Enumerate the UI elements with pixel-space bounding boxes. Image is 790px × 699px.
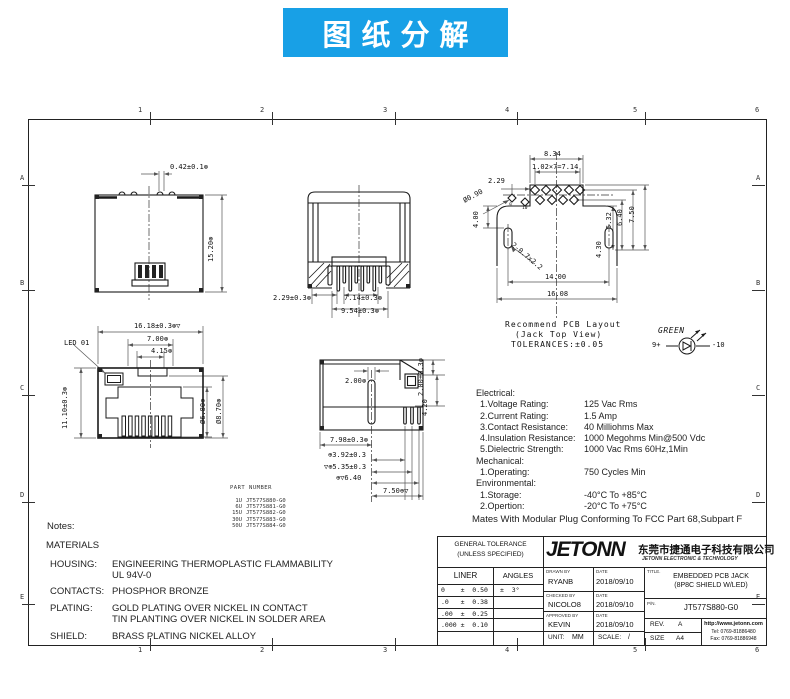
dim-side-750: 7.50⊕▽ [383,487,408,496]
spec-value: 1000 Megohms Min@500 Vdc [584,433,705,443]
grid-col-label: 6 [755,106,759,114]
tolerance-liner-row: .00 ± 0.25 [441,610,488,618]
liner-header: LINER [438,571,493,580]
drawing-sheet-page: 图纸分解 1 2 3 4 5 6 1 2 3 4 5 6 A B C D E A… [0,0,790,699]
divider [644,598,766,599]
date-label: DATE [596,569,608,574]
grid-tick [272,638,273,651]
dim-front-700: 7.00⊛ [147,335,168,344]
tolerance-liner-row: .000 ± 0.10 [441,621,488,629]
grid-tick [22,395,35,396]
grid-tick [752,185,765,186]
checked-by-value: NICOLO8 [548,600,581,609]
dim-side-392: ⊕3.92±0.3 [328,451,366,460]
grid-tick [517,112,518,125]
material-name: HOUSING: [50,559,97,570]
spec-value: 750 Cycles Min [584,467,646,477]
approved-by-value: KEVIN [548,620,571,629]
date-label: DATE [596,613,608,618]
date-label: DATE [596,593,608,598]
grid-tick [22,185,35,186]
mechanical-title: Mechanical: [476,456,776,467]
website: http://www.jetonn.com [701,621,766,627]
grid-row-label: B [20,279,24,287]
part-number-plating: 50U [226,523,242,529]
divider [644,618,766,619]
unit-value: MM [572,634,584,641]
fcc-footnote: Mates With Modular Plug Conforming To FC… [472,514,776,525]
divider [593,567,594,645]
grid-tick [645,112,646,125]
grid-row-label: C [20,384,24,392]
drawn-by-value: RYANB [548,577,573,586]
dim-pcb-400: 4.00 [472,211,481,228]
company-name-cn: 东莞市捷通电子科技有限公司 [638,542,775,557]
dim-pcb-532: 5.32 [605,212,614,229]
material-name: PLATING: [50,603,93,614]
grid-col-label: 1 [138,646,142,654]
dim-bottom-pin-span: 7.14±0.3⊛ [344,294,382,303]
spec-row: 4.Insulation Resistance:1000 Megohms Min… [476,433,776,444]
size-label: SIZE [650,635,664,642]
rev-value: A [678,621,682,628]
notes-label: Notes: [47,521,74,532]
grid-col-label: 4 [505,646,509,654]
material-name: CONTACTS: [50,586,104,597]
side-view-drawing [315,350,465,510]
rev-label: REV. [650,621,665,628]
grid-col-label: 5 [633,106,637,114]
pn-label: P/N. [647,601,656,606]
spec-value: -40°C To +85°C [584,490,647,500]
tolerance-liner-row: .0 ± 0.38 [441,598,488,606]
grid-tick [395,638,396,651]
dim-front-870: Ø8.70⊛ [215,399,224,424]
spec-row: 1.Operating:750 Cycles Min [476,467,776,478]
grid-tick [150,112,151,125]
spec-label: 1.Storage: [476,490,584,501]
part-number-row: 50UJT577S884-G0 [226,523,286,529]
dim-front-415: 4.15⊛ [151,347,172,356]
spec-label: 1.Voltage Rating: [476,399,584,410]
divider [438,567,766,568]
grid-row-label: A [756,174,760,182]
grid-col-label: 3 [383,106,387,114]
part-number-title: PART NUMBER [230,485,286,491]
material-value: UL 94V-0 [112,570,151,581]
spec-row: 1.Voltage Rating:125 Vac Rms [476,399,776,410]
grid-row-label: D [20,491,24,499]
divider [438,596,543,597]
date-value: 2018/09/10 [596,600,634,609]
spec-label: 2.Opertion: [476,501,584,512]
grid-tick [272,112,273,125]
material-name: SHIELD: [50,631,87,642]
dim-pcb-430: 4.30 [595,241,604,258]
title-block: GENERAL TOLERANCE (UNLESS SPECIFIED) LIN… [437,536,767,646]
dim-side-200t: 2.00±0.3⊛ [417,358,426,396]
part-number-code: JT577S883-G0 [246,517,286,523]
spec-value: 1.5 Amp [584,411,617,421]
tolerance-liner-row: 0 ± 0.50 [441,586,488,594]
spec-label: 4.Insulation Resistance: [476,433,584,444]
part-number-table: PART NUMBER 1UJT577S880-G0 6UJT577S881-G… [226,485,286,529]
spec-row: 1.Storage:-40°C To +85°C [476,490,776,501]
banner-title: 图纸分解 [312,12,478,54]
divider [438,618,543,619]
pcb-layout-tolerance: TOLERANCES:±0.05 [511,340,604,349]
spec-label: 3.Contact Resistance: [476,422,584,433]
spec-row: 2.Current Rating:1.5 Amp [476,411,776,422]
grid-row-label: B [756,279,760,287]
pcb-layout-title: Recommend PCB Layout [505,320,621,329]
date-value: 2018/09/10 [596,577,634,586]
spec-label: 5.Dielectric Strength: [476,444,584,455]
part-number-code: JT577S882-G0 [246,510,286,516]
drawn-by-label: DRAWN BY [546,569,570,574]
specifications: Electrical: 1.Voltage Rating:125 Vac Rms… [476,388,776,526]
pcb-pin9-label: 9 [509,203,512,208]
divider [543,537,544,645]
pcb-pin10-label: 10 [522,206,527,211]
dim-pcb-229: 2.29 [488,177,505,186]
divider [438,584,543,585]
pn-value: JT577S880-G0 [656,603,766,612]
grid-col-label: 2 [260,106,264,114]
grid-col-label: 1 [138,106,142,114]
spec-label: 2.Current Rating: [476,411,584,422]
grid-tick [395,112,396,125]
scale-value: / [628,634,630,641]
unit-label: UNIT: [548,634,564,641]
material-value: BRASS PLATING NICKEL ALLOY [112,631,256,642]
dim-pcb-1400: 14.00 [545,273,566,282]
dim-front-height: 11.10±0.3⊛ [61,387,70,429]
grid-col-label: 5 [633,646,637,654]
divider [644,567,645,645]
dim-bottom-offset: 2.29±0.3⊛ [273,294,311,303]
company-name-en: JETONN ELECTRONIC & TECHNOLOGY [642,556,738,562]
size-value: A4 [676,635,684,642]
material-value: TIN PLANTING OVER NICKEL IN SOLDER AREA [112,614,325,625]
approved-by-label: APPROVED BY [546,613,578,618]
tel: Tel: 0769-81886480 [701,629,766,635]
date-value: 2018/09/10 [596,620,634,629]
spec-value: 1000 Vac Rms 60Hz,1Min [584,444,688,454]
part-number-code: JT577S884-G0 [246,523,286,529]
general-tolerance-line1: GENERAL TOLERANCE [438,541,543,548]
dim-pcb-834: 8.34 [544,150,561,159]
dim-side-200: 2.00⊛ [345,377,366,386]
material-value: GOLD PLATING OVER NICKEL IN CONTACT [112,603,308,614]
dim-front-width: 16.18±0.3⊛▽ [134,322,180,331]
grid-tick [752,290,765,291]
pcb-layout-subtitle: (Jack Top View) [515,330,602,339]
grid-col-label: 4 [505,106,509,114]
dim-side-535: ▽⊕5.35±0.3 [324,463,366,472]
tolerance-angle-row: ± 3° [500,586,520,594]
electrical-title: Electrical: [476,388,776,399]
drawing-title-line2: (8P8C SHIELD W/LED) [656,582,766,589]
spec-row: 5.Dielectric Strength:1000 Vac Rms 60Hz,… [476,444,776,455]
top-view-drawing [75,158,235,308]
dim-pcb-pitch: 1.02×7=7.14 [532,163,578,172]
dim-side-640: ⊕▽6.40 [336,474,361,483]
grid-tick [22,290,35,291]
spec-label: 1.Operating: [476,467,584,478]
banner: 图纸分解 [283,8,508,57]
grid-tick [22,502,35,503]
fax: Fax: 0769-81886948 [701,636,766,642]
dim-side-420: 4.20 [421,399,430,416]
grid-col-label: 2 [260,646,264,654]
led-anode-label: 9+ [652,341,660,350]
front-led-label: LED 01 [64,339,89,348]
spec-row: 3.Contact Resistance:40 Milliohms Max [476,422,776,433]
spec-value: 125 Vac Rms [584,399,637,409]
divider [644,632,701,633]
material-value: PHOSPHOR BRONZE [112,586,209,597]
environmental-title: Environmental: [476,478,776,489]
dim-pcb-1608: 16.08 [547,290,568,299]
grid-row-label: A [20,174,24,182]
material-value: ENGINEERING THERMOPLASTIC FLAMMABILITY [112,559,333,570]
spec-value: -20°C To +75°C [584,501,647,511]
grid-tick [22,604,35,605]
dim-pcb-750: 7.50 [628,206,637,223]
divider [438,631,644,632]
scale-label: SCALE: [598,634,621,641]
angles-header: ANGLES [493,571,543,580]
spec-row: 2.Opertion:-20°C To +75°C [476,501,776,512]
grid-row-label: E [20,593,24,601]
dim-pcb-640: 6.40 [616,209,625,226]
led-cathode-label: -10 [712,341,725,350]
general-tolerance-line2: (UNLESS SPECIFIED) [438,551,543,558]
materials-label: MATERIALS [46,540,99,551]
drawing-title-line1: EMBEDDED PCB JACK [656,573,766,580]
grid-col-label: 6 [755,646,759,654]
led-symbol-icon [664,329,736,359]
dim-top-tab: 0.42±0.1⊛ [170,163,208,172]
checked-by-label: CHECKED BY [546,593,575,598]
grid-col-label: 3 [383,646,387,654]
dim-side-798: 7.98±0.3⊛ [330,436,368,445]
part-number-code: JT577S880-G0 [246,498,286,504]
jetonn-logo: JETONN [546,538,625,562]
dim-bottom-outer-span: 9.54±0.3⊛ [341,307,379,316]
dim-top-height: 15.20⊛ [207,237,216,262]
dim-front-680: Ø6.80⊛ [199,399,208,424]
spec-value: 40 Milliohms Max [584,422,654,432]
part-number-code: JT577S881-G0 [246,504,286,510]
